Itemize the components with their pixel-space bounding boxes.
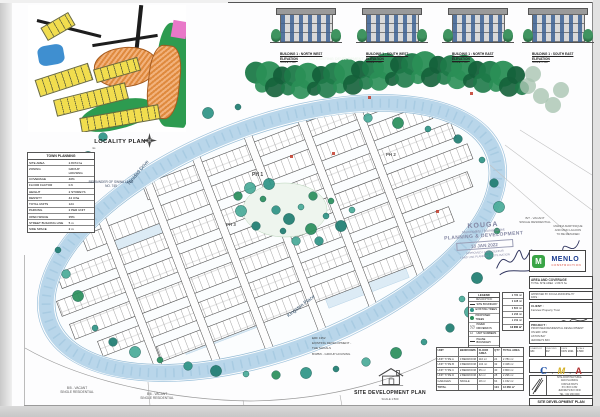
photo-left-margin: [0, 0, 12, 417]
locality-yellow-lots: [40, 12, 75, 41]
menlo-sub: CONSTRUCTION: [551, 263, 581, 267]
tree-icon: [331, 29, 341, 42]
elevation-figure-4: BUILDING 1 : SOUTH EASTELEVATIONSCALE 1:…: [522, 6, 594, 68]
architect-signature-cell: [530, 376, 547, 395]
legend-unit-number-symbol: 12: [470, 332, 475, 335]
unit-schedule-table: UNITBEDROOMSFLOOR AREAQTYTOTAL AREA UNIT…: [436, 347, 524, 391]
photo-right-margin: [593, 0, 600, 417]
erf603-label: ERF 603 EXISTING DEVELOPMENT: [300, 57, 440, 61]
building-drawing: [450, 8, 506, 48]
town-planning-title: TOWN PLANNING: [28, 153, 94, 160]
menlo-logo-box: M MENLO CONSTRUCTION: [529, 250, 586, 272]
legend-phase-symbol: [470, 341, 475, 342]
marina-note: MARINA MARTINIQUEAND MAIN LAGOONTO BE RE…: [543, 224, 593, 236]
approval-box: APPROVED BY KOUGA MUNICIPALITY DATE :: [529, 291, 593, 300]
project-box: PROJECT : PROPOSED RESIDENTIAL DEVELOPME…: [529, 321, 593, 344]
legend-existing-tree-symbol: [470, 308, 474, 312]
elevation-figure-3: BUILDING 1 : NORTH EASTELEVATIONSCALE 1:…: [442, 6, 514, 68]
tree-icon: [443, 29, 453, 42]
photo-bottom-margin: [0, 406, 600, 417]
locality-plan-map: [28, 5, 186, 132]
titleblock-footer: SITE DEVELOPMENT PLAN: [529, 398, 593, 406]
legend-boundary-symbol: [470, 304, 475, 305]
tree-icon: [417, 29, 427, 42]
client-box: CLIENT : Fairview Property Trust: [529, 302, 593, 319]
phase-1-label: PH 1: [252, 172, 263, 178]
tree-icon: [583, 29, 593, 42]
phase-3-label: PH 3: [226, 222, 236, 227]
area-totals-strip: 2 784 m² 3 328 m² 3 800 m² 2 296 m² 1 15…: [502, 292, 524, 331]
tree-icon: [523, 29, 533, 42]
sheet-border-left: [24, 255, 25, 405]
b6-vacant-label: B/6 - VACANTSINGLE RESIDENTIAL: [122, 392, 192, 400]
drawing-scale: SCALE 1:500: [340, 397, 440, 401]
tree-icon: [503, 29, 513, 42]
legend-paving-symbol: [470, 325, 475, 329]
menlo-name: MENLO: [551, 256, 581, 263]
signature-address-box: SITE ARCHITECTURALAND PLANNING CONSULTAN…: [529, 375, 593, 396]
drawing-title: SITE DEVELOPMENT PLAN: [340, 390, 440, 396]
area-coverage-box: AREA AND COVERAGE TOTAL SITE AREA : 2.84…: [529, 276, 593, 289]
b5-vacant-label: B/5 - VACANTSINGLE RESIDENTIAL: [42, 386, 112, 394]
town-planning-table: TOWN PLANNING SITE AREA2.8474 ha ZONINGG…: [27, 152, 95, 233]
tree-icon: [357, 29, 367, 42]
compass-rose-icon: [142, 133, 157, 148]
house-icon: [377, 366, 405, 388]
tree-icon: [271, 29, 281, 42]
locality-blue-zone: [36, 43, 65, 67]
locality-plan-scale: nts: [92, 147, 95, 150]
locality-road: [92, 34, 158, 47]
drawing-info-row: DRAWN BYMC CHECKEDDV DATENOV 2021 SCALE1…: [529, 346, 593, 357]
legend-proposed-tree-symbol: [470, 316, 474, 320]
menlo-m-icon: M: [532, 255, 545, 268]
architects-logo-row: C • M • A A R C H I T E C T S: [529, 359, 593, 373]
building-drawing: [530, 8, 586, 48]
sheet-border-bottom: [24, 405, 592, 406]
sheet-border-top: [228, 2, 592, 3]
erf1352-note: ERF 1352EXISTING DEVELOPMENT - THE SHOAL…: [312, 336, 396, 357]
address-lines: SITE ARCHITECTURALAND PLANNING CONSULTAN…: [547, 376, 592, 395]
building-drawing: [364, 8, 420, 48]
locality-pink-zone: [171, 20, 186, 39]
legend-box: LEGEND DESCRIPTION SITE BOUNDARY EXISTIN…: [468, 292, 500, 355]
scanned-site-plan-sheet: { "locality": {"title": "LOCALITY PLAN",…: [0, 0, 600, 417]
phase-2-label: PH 2: [386, 152, 396, 157]
building-drawing: [278, 8, 334, 48]
